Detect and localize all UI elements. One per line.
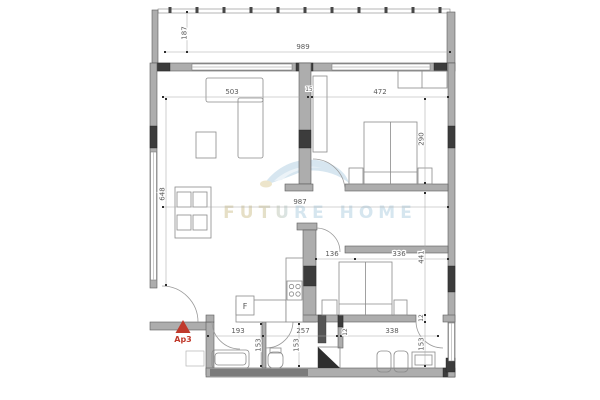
chair	[193, 215, 207, 230]
bathtub-inner	[215, 353, 246, 365]
dim-wall-12-mid: 12	[343, 328, 349, 336]
wall-bath1-bath2	[262, 322, 266, 368]
balcony-side-wall-right	[447, 12, 455, 63]
wall-living-bedroom1	[299, 63, 311, 184]
wall-hall-bedroom1	[345, 184, 448, 191]
door-arc-bath1	[212, 321, 240, 349]
dim-bath3-width: 338	[385, 327, 398, 335]
column-north-right	[434, 63, 447, 71]
sink-basin	[415, 355, 432, 365]
dim-wall-12-right: 12	[419, 314, 425, 322]
column-divider-top	[299, 130, 311, 148]
nightstand	[322, 300, 337, 315]
dim-bath2-width: 257	[296, 327, 309, 335]
dim-wall-15: 15	[305, 87, 313, 93]
wall-stub-hall-bottom	[297, 223, 317, 230]
watermark-accent	[260, 181, 272, 188]
door-arc-entrance	[162, 286, 198, 322]
exterior-closet	[186, 351, 204, 366]
watermark-logo: FUTURE HOME	[223, 160, 417, 223]
dim-balcony-depth: 187	[181, 26, 189, 39]
column-east-mid	[448, 266, 455, 292]
chair	[193, 192, 207, 207]
floor-plan-drawing: FUTURE HOME	[0, 0, 600, 400]
wall-bath-north-d	[443, 315, 455, 322]
wall-stub-hall-top	[285, 184, 313, 191]
dim-bedroom2-nook: 136	[325, 250, 339, 258]
shower-tray-fill	[318, 347, 340, 368]
chair	[177, 215, 191, 230]
sink-counter	[412, 352, 435, 368]
toilet	[268, 352, 283, 368]
dim-total-width: 987	[293, 198, 306, 206]
wall-shower-stub	[318, 315, 326, 343]
dim-bath1-depth: 153	[255, 338, 263, 351]
chair	[177, 192, 191, 207]
dim-bedroom1-depth: 290	[418, 132, 426, 145]
wall-bath2-bath3-dark	[338, 315, 343, 327]
balcony-side-wall-left	[152, 10, 158, 63]
fridge-label: F	[243, 302, 248, 311]
wall-south-dark-section	[210, 369, 308, 376]
dim-balcony-width: 989	[296, 43, 309, 51]
shelf-bedroom1	[313, 76, 327, 152]
watermark-text: FUTURE HOME	[223, 203, 417, 223]
dim-bath1-width: 193	[231, 327, 244, 335]
wardrobe-bedroom1	[398, 71, 447, 88]
sofa-chaise-arm	[238, 98, 263, 158]
dim-bedroom2-width: 336	[392, 250, 406, 258]
balcony	[152, 7, 455, 63]
door-arc-bath2	[266, 321, 293, 348]
dim-right-depth: 441	[418, 250, 426, 263]
kitchen-counter	[286, 258, 303, 322]
column-east-top	[448, 126, 455, 148]
unit-marker-label[interactable]: Ap3	[174, 335, 191, 344]
nightstand	[394, 300, 407, 315]
nightstand	[349, 168, 363, 184]
column-west	[150, 126, 157, 148]
dim-living-width: 503	[225, 88, 238, 96]
coffee-table	[196, 132, 216, 158]
dim-living-height: 648	[159, 187, 167, 200]
wall-bath-north-a	[206, 315, 214, 322]
dim-bath3-depth: 153	[418, 337, 426, 350]
dim-bedroom1-width: 472	[373, 88, 386, 96]
floor-plan-canvas: FUTURE HOME	[0, 0, 600, 400]
column-north-left	[157, 63, 170, 71]
column-kitchen-wall	[303, 266, 316, 286]
wall-bath-north-c	[293, 315, 416, 322]
dim-bath2-depth: 153	[293, 338, 301, 351]
door-arc-bedroom2	[316, 228, 340, 252]
